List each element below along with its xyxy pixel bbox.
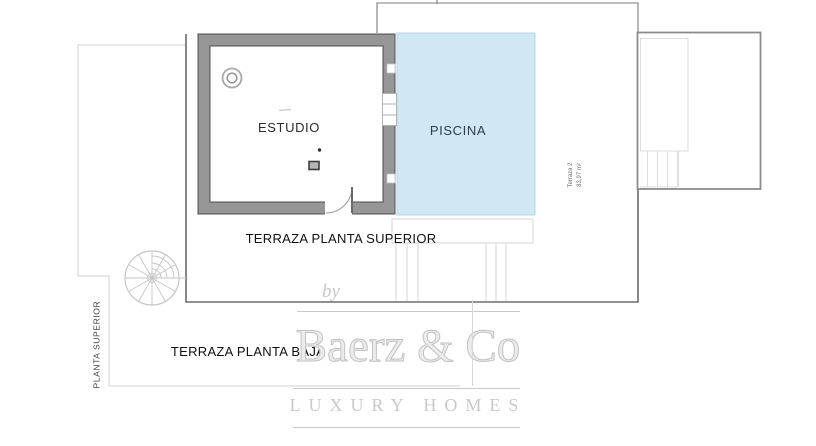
floorplan-drawing	[0, 0, 816, 446]
watermark-rule-bottom	[293, 427, 520, 428]
floorplan-page: ESTUDIO PISCINA TERRAZA PLANTA SUPERIOR …	[0, 0, 816, 446]
skylight-icon	[223, 69, 242, 88]
window-icon	[383, 94, 397, 126]
terraza-superior-label: TERRAZA PLANTA SUPERIOR	[231, 231, 451, 246]
spot-marker	[318, 148, 321, 151]
watermark-tagline: LUXURY HOMES	[288, 395, 528, 416]
piscina-room-label: PISCINA	[408, 123, 508, 138]
spiral-staircase-icon	[125, 251, 186, 305]
terraza2-size: 83,97 m²	[576, 155, 585, 195]
terraza2-area-label: Terraza 2 83,97 m²	[567, 155, 585, 195]
terraza2-name: Terraza 2	[567, 155, 576, 195]
watermark-rule-top	[297, 311, 520, 312]
annex-outline	[638, 33, 761, 190]
watermark-divider	[472, 300, 473, 386]
watermark-rule-middle	[293, 388, 520, 389]
planta-superior-label: PLANTA SUPERIOR	[92, 305, 103, 389]
watermark-brand: Baerz & Co	[291, 318, 525, 374]
watermark-by: by	[322, 281, 340, 303]
upper-terrace-outline	[377, 0, 638, 33]
estudio-room-label: ESTUDIO	[239, 120, 339, 135]
floor-outlet-icon	[309, 162, 319, 170]
estudio-fixtures	[223, 69, 322, 170]
